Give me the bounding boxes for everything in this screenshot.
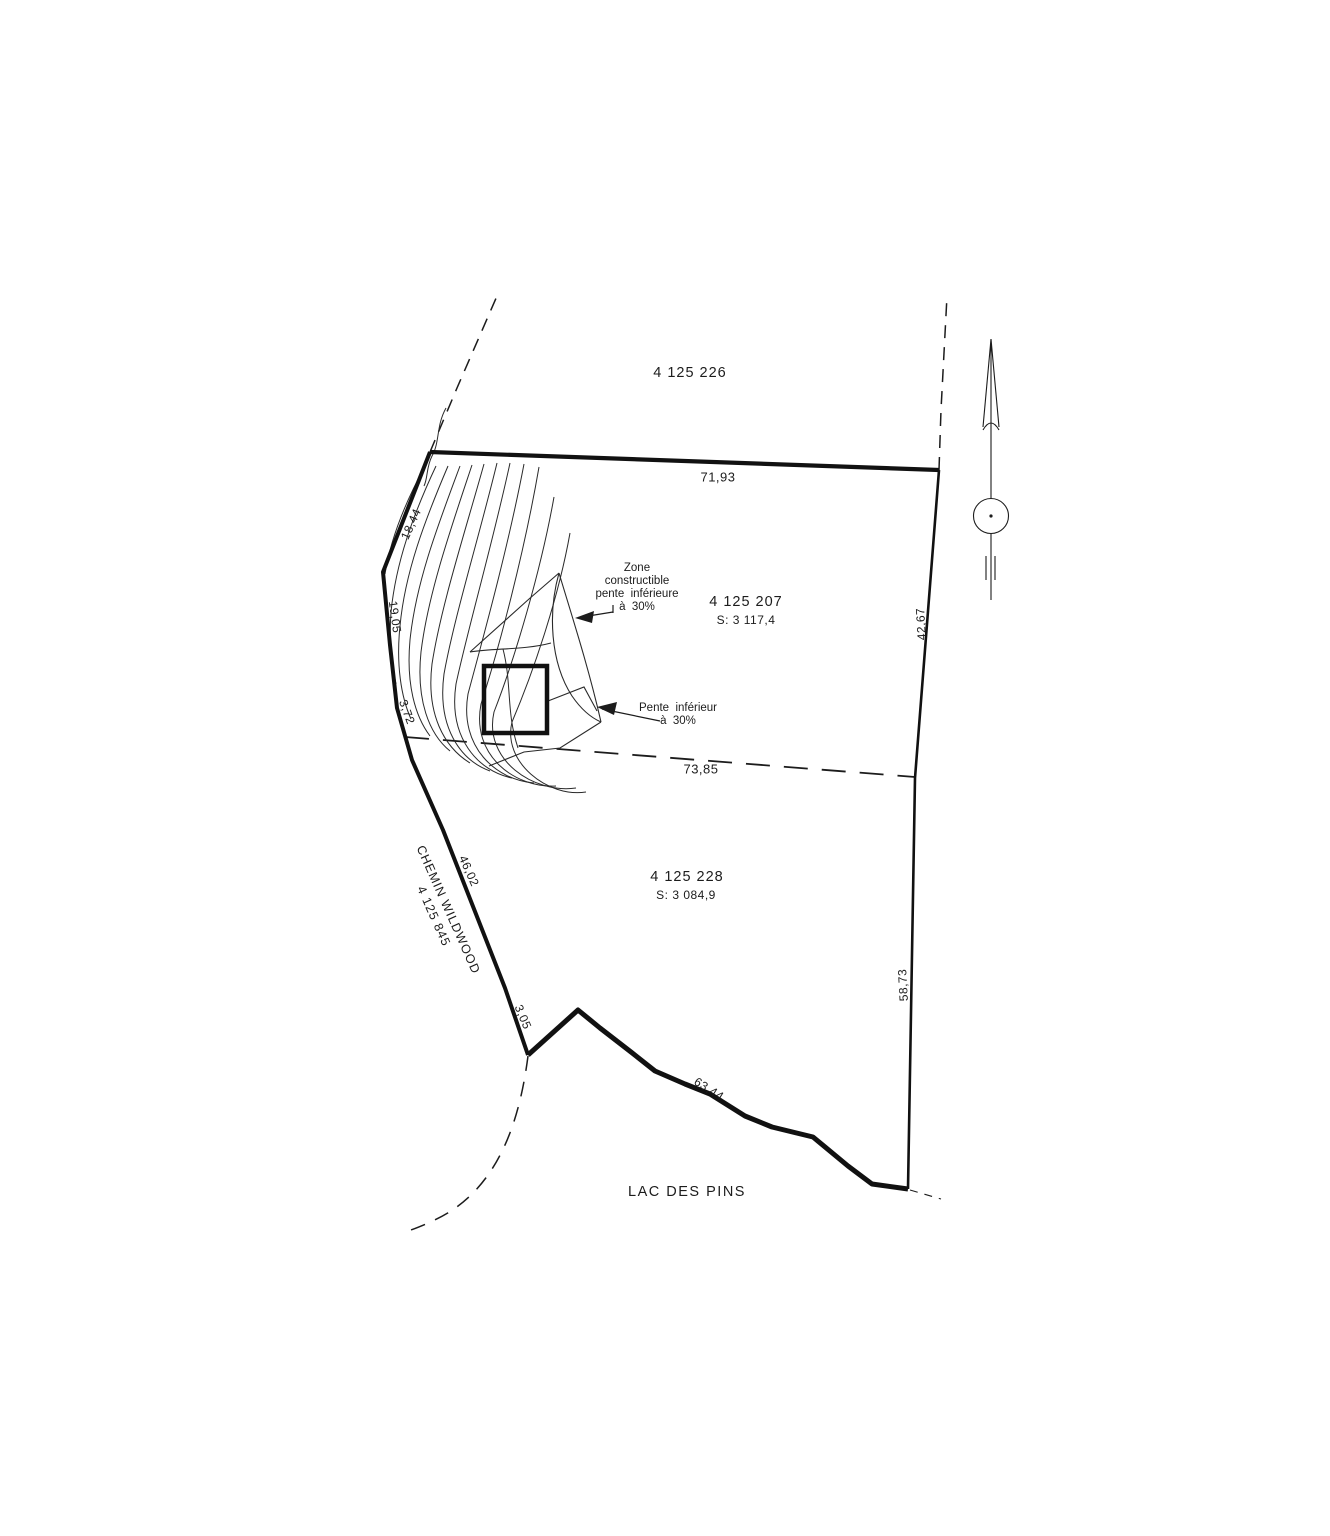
- pente-note-line1: Pente inférieur: [639, 702, 717, 715]
- lake-label: LAC DES PINS: [628, 1184, 746, 1200]
- building-footprint-square: [484, 666, 547, 733]
- zone-note-line3: pente inférieure: [595, 588, 678, 601]
- shore-extension-dashed-line: [910, 1190, 941, 1199]
- northeast-extension-dashed-line: [939, 296, 947, 470]
- dimension-top: 71,93: [700, 470, 735, 485]
- north-arrow-center-dot: [989, 514, 992, 517]
- site-plan-page: 4 125 226 71,93 Zone constructible pente…: [0, 0, 1330, 1536]
- pente-note: Pente inférieur à 30%: [639, 702, 717, 728]
- zone-constructible-note: Zone constructible pente inférieure à 30…: [595, 562, 678, 614]
- northwest-extension-dashed-line: [430, 296, 497, 452]
- north-arrow-icon: [974, 339, 1009, 600]
- parcel-center-area: S: 3 117,4: [717, 613, 776, 627]
- north-arrow-head-right: [991, 339, 999, 427]
- parcel-center-label: 4 125 207: [709, 594, 783, 610]
- zone-note-line4: à 30%: [595, 601, 678, 614]
- dashed-limit-lines: [403, 296, 947, 1233]
- constructible-zone-outline: [470, 573, 601, 766]
- lot-division-dashed-line: [405, 737, 915, 777]
- parcel-north-label: 4 125 226: [653, 365, 727, 381]
- zone-note-line2: constructible: [595, 575, 678, 588]
- boundary-east: [908, 470, 939, 1189]
- plan-linework: [0, 0, 1330, 1536]
- zone-arrow-head-icon: [575, 611, 594, 623]
- parcel-south-label: 4 125 228: [650, 869, 724, 885]
- parcel-south-area: S: 3 084,9: [656, 888, 716, 902]
- zone-note-line1: Zone: [595, 562, 678, 575]
- pente-arrow-head-icon: [597, 702, 617, 715]
- boundary-north: [430, 452, 939, 470]
- dimension-right-upper: 42,67: [913, 607, 929, 640]
- road-curve-dashed-line: [403, 1056, 528, 1233]
- north-arrow-head-left: [983, 339, 991, 427]
- pente-note-line2: à 30%: [639, 715, 717, 728]
- dimension-right-lower: 58,73: [895, 968, 911, 1001]
- dimension-division: 73,85: [683, 762, 718, 777]
